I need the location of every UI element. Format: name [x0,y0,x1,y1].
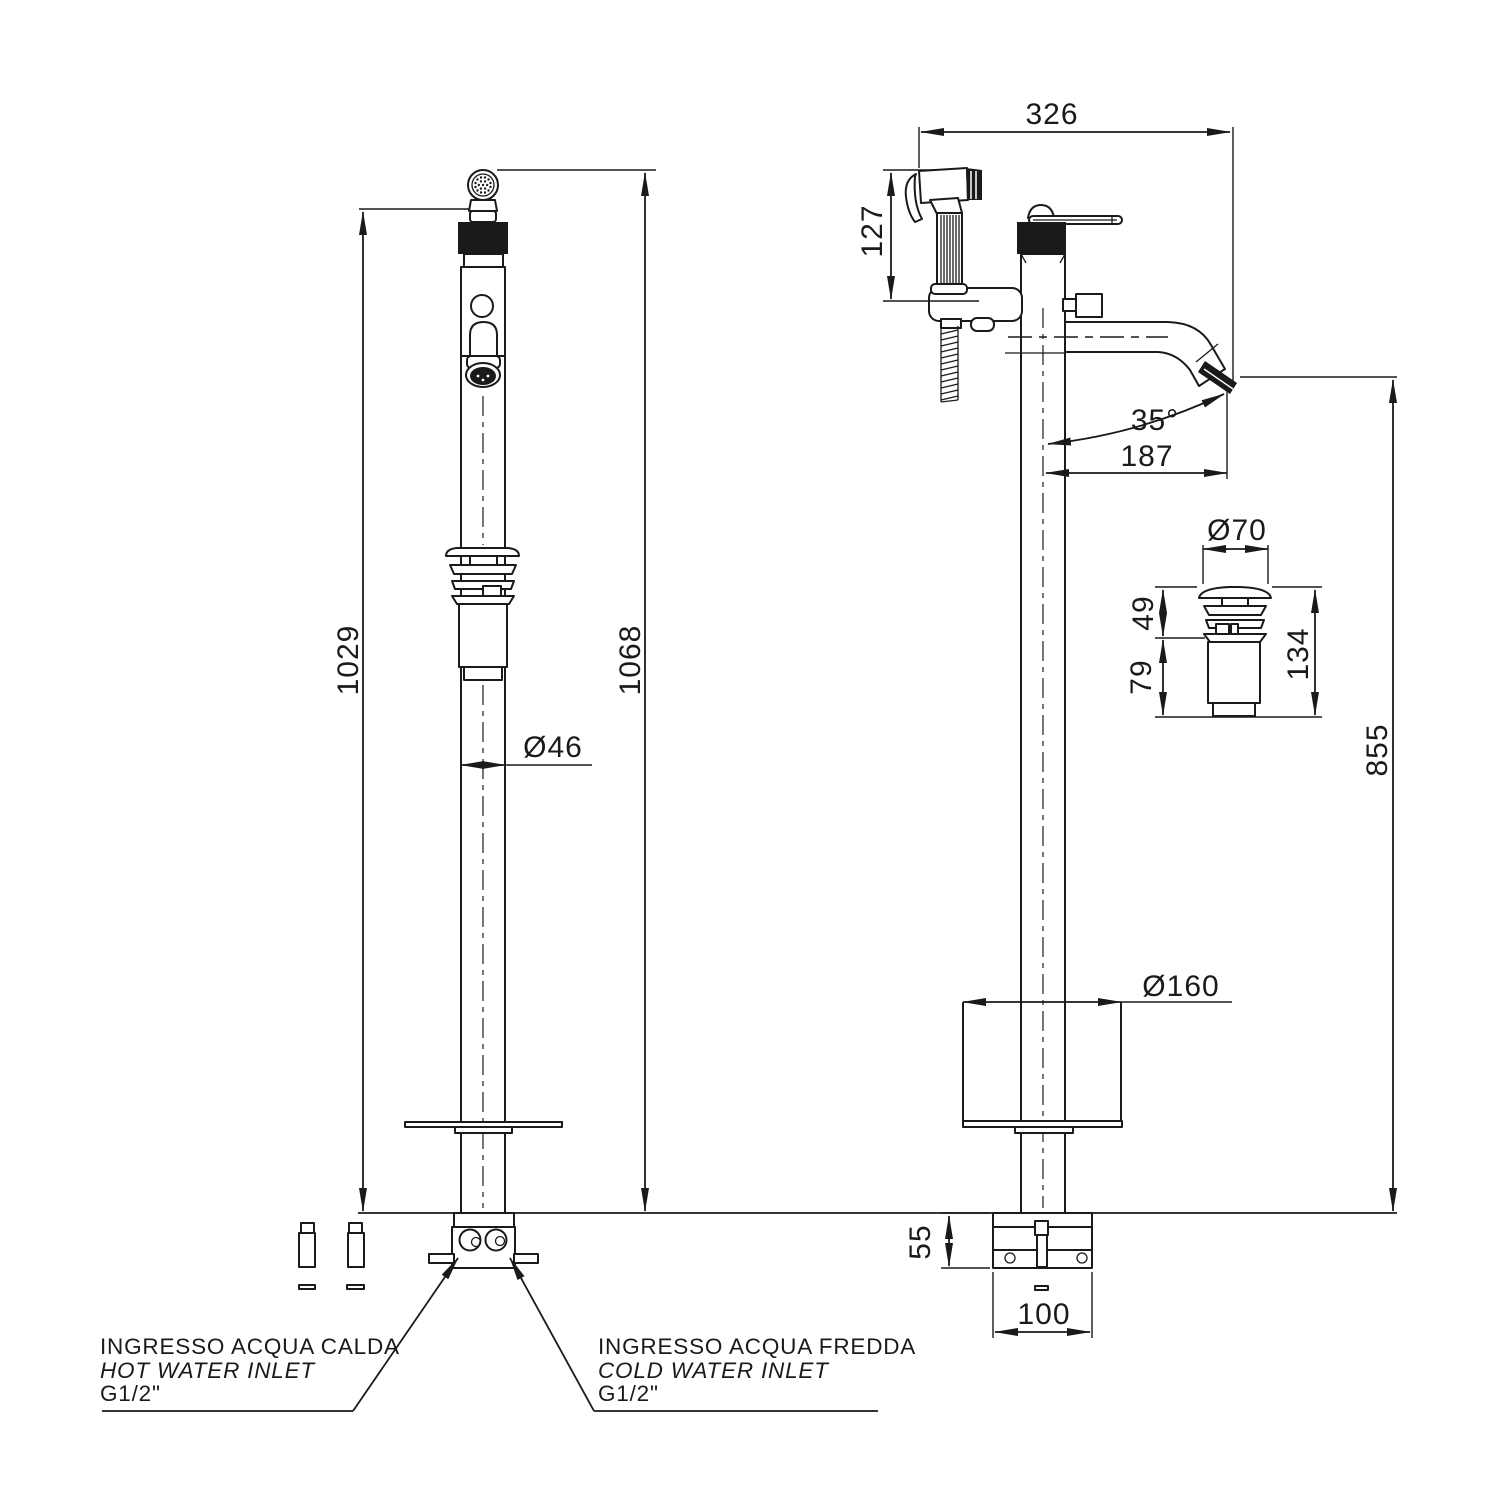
dim-drain-diameter: Ø70 [1207,514,1267,547]
technical-drawing-freestanding-faucet: 1029 1068 Ø46 [0,0,1500,1500]
popup-waste-detail [1199,587,1271,716]
floor-plate-flange-side [1015,1127,1073,1133]
aerator-face [470,367,496,385]
sprayer-holder-cup [931,284,967,294]
base-side [993,1213,1092,1290]
hot-water-inlet-port [460,1230,481,1251]
hot-water-thread: G1/2" [100,1381,161,1406]
dim-drain-bottom: 79 [1125,659,1158,694]
dim-spout-reach: 187 [1120,440,1173,473]
manifold-boss [971,318,994,331]
popup-waste-front [446,548,519,680]
dim-spout-angle: 35° [1131,404,1179,437]
base-tab-right [514,1254,538,1263]
knurled-ring [458,222,508,254]
dim-overall-width: 326 [1025,98,1078,131]
front-view [299,170,562,1289]
diverter-knob [1076,294,1102,317]
diverter-stem [1063,299,1076,311]
dim-base-width: 100 [1017,1298,1070,1331]
flex-hose-coil [941,326,958,402]
fixing-pins [299,1223,364,1289]
dim-total-height: 1068 [614,625,647,696]
dim-drain-top: 49 [1127,595,1160,630]
cold-water-label-it: INGRESSO ACQUA FREDDA [598,1334,916,1359]
handshower-clamp [470,211,496,222]
dim-height-spout-front: 1029 [332,625,365,696]
sprayer-handle-ribs [941,215,959,287]
dim-base-height: 55 [904,1224,937,1259]
base-tab-left [429,1254,454,1263]
dim-column-diameter: Ø46 [523,731,583,764]
dim-spout-floor-height: 855 [1361,723,1394,776]
handshower-elbow [469,200,497,211]
hot-water-label-it: INGRESSO ACQUA CALDA [100,1334,400,1359]
sprayer-head [919,168,968,203]
dim-base-flange-diameter: Ø160 [1142,970,1219,1003]
sprayer-cap [966,168,982,200]
spout-front [470,322,497,356]
column-neck [464,254,503,267]
knurled-ring-side [1017,222,1066,254]
base-collar-front [454,1213,514,1227]
floor-plate-flange-front [455,1127,512,1133]
cold-water-thread: G1/2" [598,1381,659,1406]
handshower-side [906,168,1022,402]
dim-handshower-height: 127 [856,204,889,257]
drawing-svg: 1029 1068 Ø46 [0,0,1500,1500]
side-view [906,168,1271,1290]
spout-side [1065,322,1225,386]
handle-pivot [471,295,493,317]
sprayer-nozzle [930,198,962,214]
hot-water-label-en: HOT WATER INLET [100,1358,316,1383]
inlet-callouts: INGRESSO ACQUA CALDA HOT WATER INLET G1/… [100,1258,916,1411]
cold-water-label-en: COLD WATER INLET [598,1358,830,1383]
dim-drain-total: 134 [1282,627,1315,680]
